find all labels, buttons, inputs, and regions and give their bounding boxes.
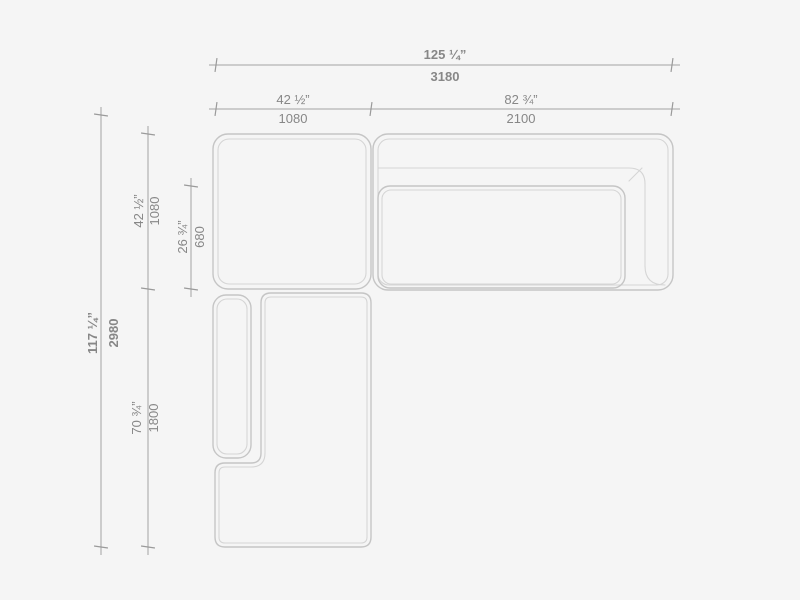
dim-corner-depth-chaise-length: 42 ½” 1080 70 ¾” 1800 [129,126,162,555]
dim-overall-depth: 117 ¼” 2980 [85,107,121,555]
corner-module-outline [213,134,371,289]
corner-module-inner-outline [218,139,366,284]
corner-width-inches-label: 42 ½” [276,92,309,107]
overall-width-inches-label: 125 ¼” [424,47,467,62]
overall-depth-inches-label: 117 ¼” [85,312,100,354]
dim-overall-width: 125 ¼” 3180 [209,47,680,84]
chaise-backrest-cushion-outline [213,295,251,458]
sofa-seat-cushion-inner-outline [382,190,621,284]
sofa-width-mm-label: 2100 [507,111,536,126]
corner-depth-inches-label: 42 ½” [131,194,146,227]
sofa-corner-miter-line [629,168,642,181]
overall-depth-mm-label: 2980 [106,319,121,348]
chaise-seat-inner-outline [219,297,367,543]
seat-depth-inches-label: 26 ¾” [175,220,190,253]
chaise-length-inches-label: 70 ¾” [129,401,144,434]
dim-module-widths: 42 ½” 1080 82 ¾” 2100 [209,92,680,126]
sofa-seat-cushion-outline [378,186,625,288]
sofa-module [373,134,673,290]
chaise-backrest-cushion-inner-outline [217,299,247,454]
overall-width-mm-label: 3180 [431,69,460,84]
dimension-lines: 125 ¼” 3180 42 ½” 1080 82 ¾” 2100 117 ¼”… [85,47,680,555]
chaise-module [213,293,371,547]
sofa-width-inches-label: 82 ¾” [504,92,537,107]
sofa-plan [213,134,673,547]
chaise-length-mm-label: 1800 [146,404,161,433]
dim-seat-depth: 26 ¾” 680 [175,178,207,297]
corner-module [213,134,371,289]
sofa-module-outline [373,134,673,290]
sofa-dimension-drawing: 125 ¼” 3180 42 ½” 1080 82 ¾” 2100 117 ¼”… [0,0,800,600]
corner-width-mm-label: 1080 [279,111,308,126]
corner-depth-mm-label: 1080 [147,197,162,226]
seat-depth-mm-label: 680 [192,226,207,248]
chaise-seat-outline [215,293,371,547]
drawing-svg: 125 ¼” 3180 42 ½” 1080 82 ¾” 2100 117 ¼”… [0,0,800,600]
